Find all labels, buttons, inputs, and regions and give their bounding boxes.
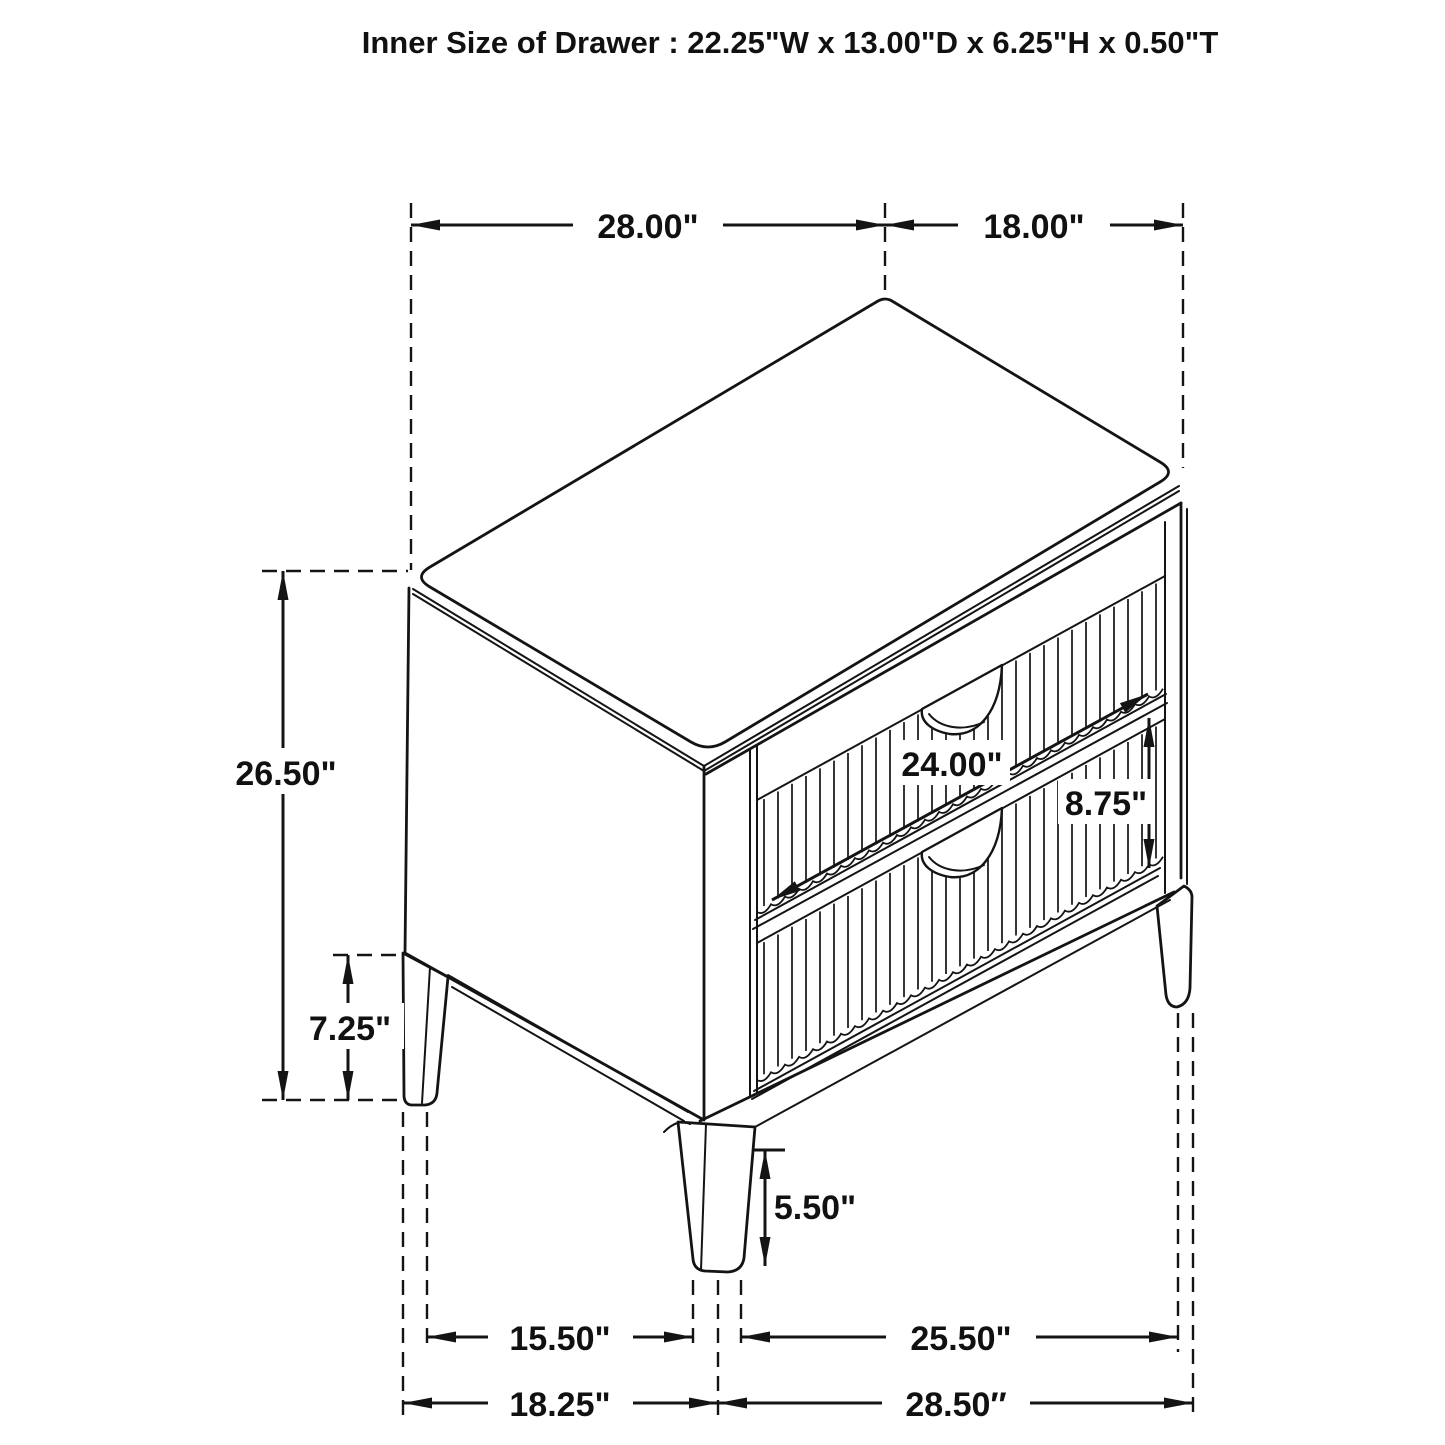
dimension-annotations: 28.00" 18.00" 26.50" 7.25" 24.00" bbox=[228, 203, 1193, 1424]
dimension-bottom-right-inner: 25.50" bbox=[741, 1317, 1178, 1358]
bottom-rail-1 bbox=[754, 868, 1160, 1091]
face-bottom-edge-2 bbox=[755, 900, 1170, 1127]
dimension-bottom-right-outer: 28.50″ bbox=[718, 1383, 1193, 1424]
dimension-label: 5.50" bbox=[774, 1189, 856, 1227]
dimension-base-height: 7.25" bbox=[296, 955, 404, 1100]
drawer1-handle bbox=[922, 665, 1002, 734]
dimension-label: 18.00" bbox=[983, 208, 1084, 246]
dimension-label: 28.00" bbox=[597, 208, 698, 246]
dimension-bottom-left-inner: 15.50" bbox=[427, 1317, 693, 1358]
side-apron-line-2 bbox=[452, 987, 684, 1121]
side-panel-left-edge bbox=[405, 588, 409, 953]
dimension-label: 26.50" bbox=[235, 755, 336, 793]
rear-left-leg-arris bbox=[422, 967, 430, 1103]
bottom-rail-2 bbox=[752, 876, 1158, 1099]
dimension-label: 24.00" bbox=[901, 746, 1002, 784]
dimension-label: 28.50″ bbox=[905, 1386, 1006, 1424]
dimension-label: 18.25" bbox=[509, 1386, 610, 1424]
dimension-label: 8.75" bbox=[1065, 785, 1147, 823]
drawer-fluting bbox=[764, 584, 1156, 1075]
dimension-leg-height: 5.50" bbox=[752, 1150, 858, 1266]
nightstand-dimension-diagram: 28.00" 18.00" 26.50" 7.25" 24.00" bbox=[0, 0, 1445, 1445]
front-leg bbox=[678, 1122, 755, 1272]
diagram-title: Inner Size of Drawer : 22.25"W x 13.00"D… bbox=[362, 25, 1219, 60]
dimension-label: 15.50" bbox=[509, 1320, 610, 1358]
dimension-top-left: 28.00" bbox=[411, 205, 885, 246]
drawing-canvas: 28.00" 18.00" 26.50" 7.25" 24.00" bbox=[0, 0, 1445, 1445]
side-apron-line-1 bbox=[448, 975, 688, 1112]
dimension-label: 7.25" bbox=[309, 1010, 391, 1048]
top-surface bbox=[422, 299, 1169, 747]
dimension-bottom-left-outer: 18.25" bbox=[403, 1383, 718, 1424]
face-bottom-edge bbox=[700, 892, 1174, 1121]
front-leg-arris bbox=[701, 1124, 706, 1270]
dimension-label: 25.50" bbox=[910, 1320, 1011, 1358]
dimension-top-right: 18.00" bbox=[885, 205, 1183, 246]
